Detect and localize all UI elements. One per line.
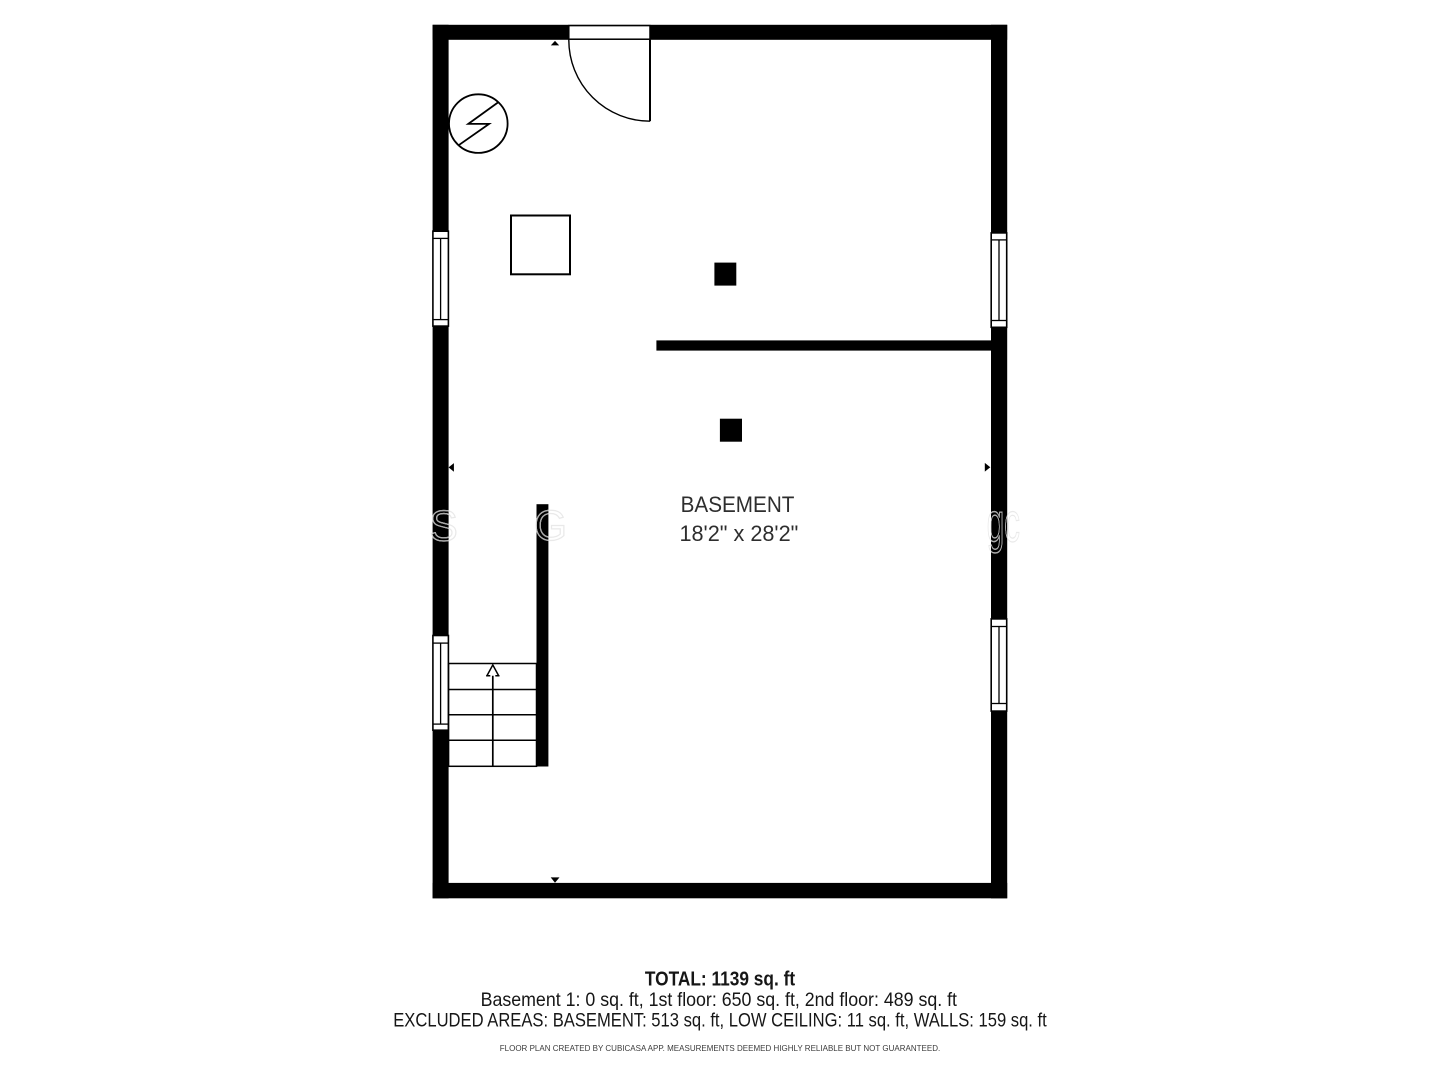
svg-text:18'2" x 28'2": 18'2" x 28'2" bbox=[679, 521, 798, 546]
svg-text:TOTAL: 1139 sq. ft: TOTAL: 1139 sq. ft bbox=[645, 969, 795, 991]
svg-text:FLOOR PLAN CREATED BY CUBICASA: FLOOR PLAN CREATED BY CUBICASA APP. MEAS… bbox=[500, 1044, 941, 1053]
svg-text:EXCLUDED AREAS: BASEMENT: 513: EXCLUDED AREAS: BASEMENT: 513 sq. ft, LO… bbox=[393, 1011, 1047, 1032]
svg-text:Basement 1: 0 sq. ft, 1st floo: Basement 1: 0 sq. ft, 1st floor: 650 sq.… bbox=[481, 989, 958, 1011]
svg-text:BASEMENT: BASEMENT bbox=[681, 492, 795, 517]
